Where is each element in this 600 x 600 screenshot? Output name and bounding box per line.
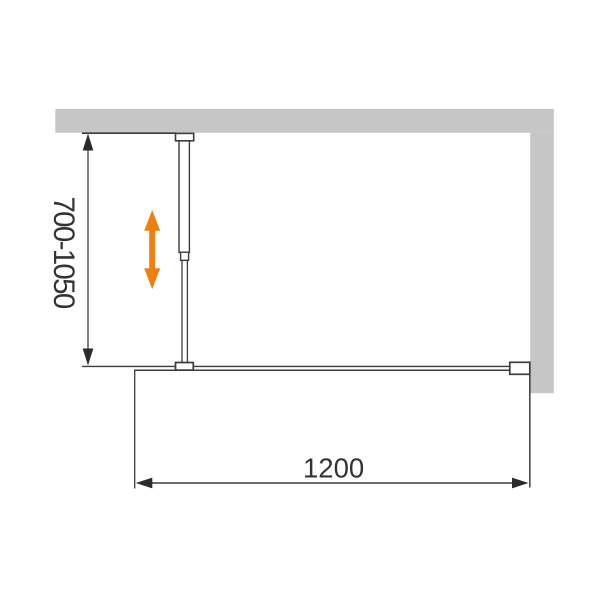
svg-text:1200: 1200 (303, 452, 364, 483)
svg-text:700-1050: 700-1050 (47, 196, 80, 308)
